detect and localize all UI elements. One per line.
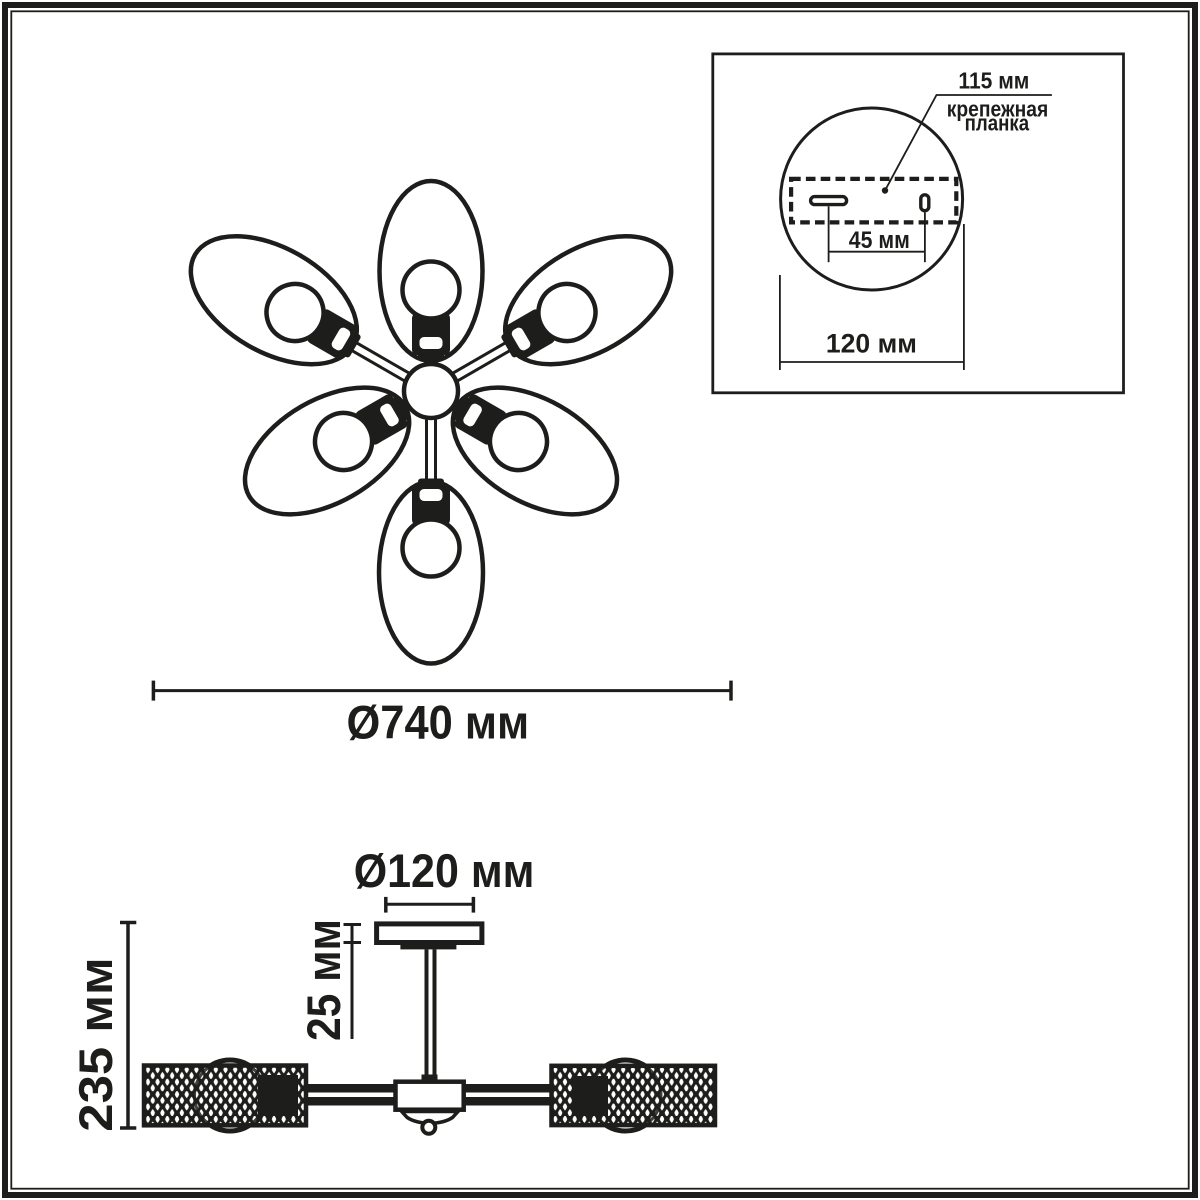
svg-text:Ø120 мм: Ø120 мм — [354, 844, 535, 897]
svg-text:235 мм: 235 мм — [70, 957, 123, 1132]
svg-text:45 мм: 45 мм — [849, 227, 910, 254]
svg-text:25 мм: 25 мм — [297, 919, 350, 1041]
svg-text:планка: планка — [965, 110, 1030, 135]
svg-text:115 мм: 115 мм — [958, 68, 1029, 94]
svg-text:120 мм: 120 мм — [826, 328, 917, 358]
svg-text:Ø740 мм: Ø740 мм — [347, 696, 530, 749]
